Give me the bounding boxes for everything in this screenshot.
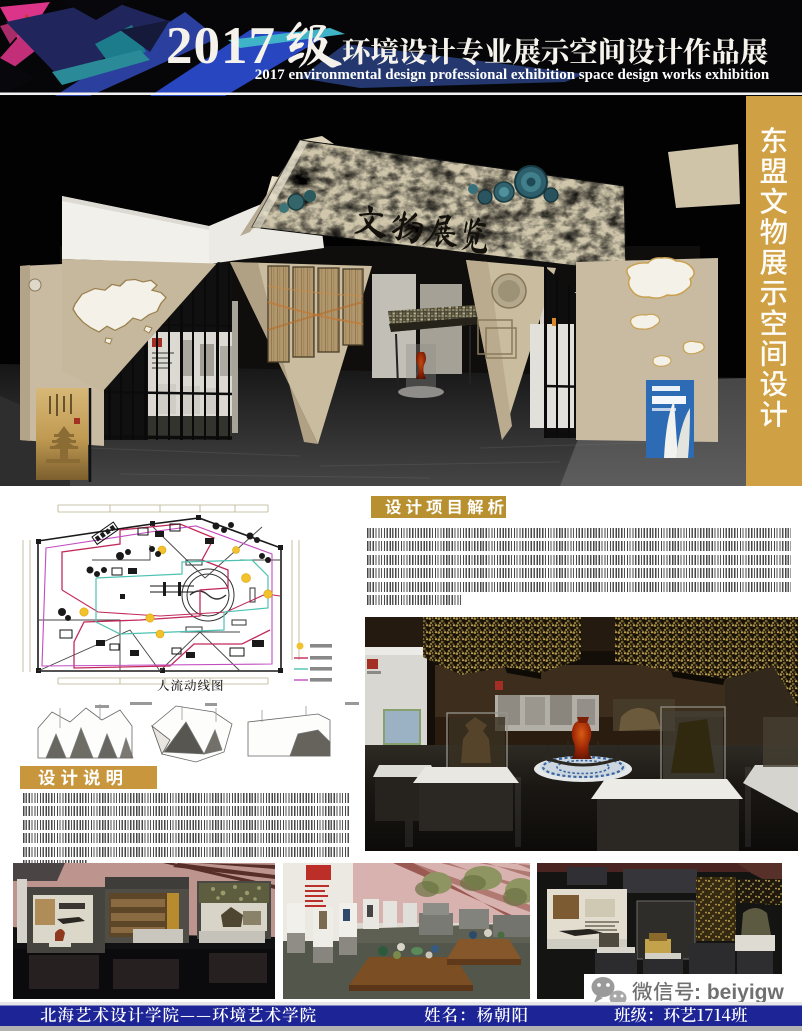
svg-text:: beiyigw: : beiyigw (694, 981, 785, 1004)
